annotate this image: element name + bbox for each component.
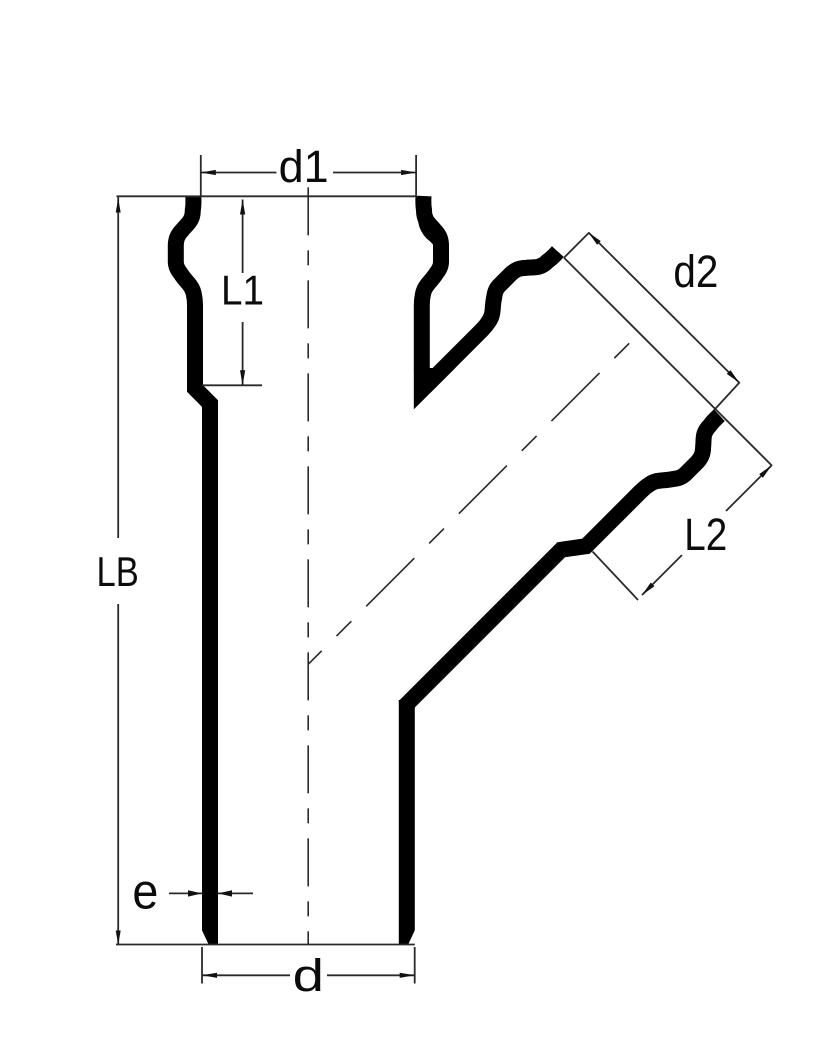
svg-text:LB: LB [97,548,139,595]
svg-text:e: e [132,863,158,919]
svg-text:d: d [293,950,324,1001]
svg-text:L1: L1 [221,266,264,313]
svg-text:d1: d1 [279,141,329,192]
svg-text:L2: L2 [684,509,727,560]
svg-text:d2: d2 [673,246,718,297]
